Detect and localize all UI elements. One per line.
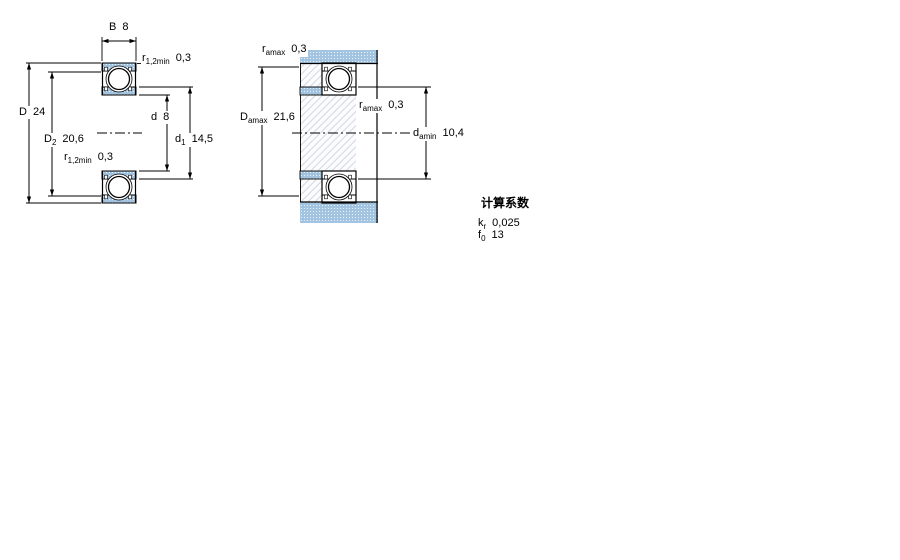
dim-subscript: 1,2min xyxy=(68,156,92,165)
ball-bottom xyxy=(109,177,130,198)
dim-value: 21,6 xyxy=(274,111,295,123)
ball-top xyxy=(109,69,130,90)
drawing-canvas: B8 r1,2min0,3 D24 d8 D220,6 d114,5 r1,2m… xyxy=(0,0,900,560)
seal-notch xyxy=(105,67,108,71)
dim-label-ra-mid: ramax0,3 xyxy=(358,99,405,113)
dim-label-d1: d114,5 xyxy=(174,133,214,147)
dim-label-Da: Damax21,6 xyxy=(239,111,296,125)
dim-subscript: amax xyxy=(266,48,286,57)
dim-symbol: B xyxy=(109,21,116,33)
dim-symbol: D xyxy=(19,106,27,118)
dimension-Da xyxy=(258,67,299,196)
bearing-section-bottom xyxy=(322,171,356,203)
dim-label-D: D24 xyxy=(18,106,46,119)
housing-top xyxy=(300,50,378,63)
dimension-d xyxy=(139,95,170,171)
dim-value: 0,3 xyxy=(176,52,191,64)
ball xyxy=(329,69,350,90)
ball xyxy=(329,177,350,198)
dim-label-r12-bottom: r1,2min0,3 xyxy=(63,151,114,165)
dim-subscript: 2 xyxy=(52,138,56,147)
shaft-shoulder-bottom xyxy=(300,171,322,179)
dim-subscript: amax xyxy=(248,116,268,125)
dim-value: 0,3 xyxy=(388,99,403,111)
bearing-technical-drawing xyxy=(0,0,900,560)
dim-label-r12-top: r1,2min0,3 xyxy=(141,52,192,66)
factor-value: 0,025 xyxy=(492,217,520,229)
dim-symbol: d xyxy=(151,111,157,123)
dim-value: 0,3 xyxy=(98,151,113,163)
dim-subscript: 1 xyxy=(181,138,185,147)
dim-value: 10,4 xyxy=(442,127,463,139)
dim-value: 20,6 xyxy=(62,133,83,145)
dim-value: 8 xyxy=(163,111,169,123)
seal-notch xyxy=(105,195,108,199)
dim-symbol: D xyxy=(44,133,52,145)
dim-value: 14,5 xyxy=(192,133,213,145)
dim-subscript: amin xyxy=(419,132,436,141)
dim-value: 8 xyxy=(122,21,128,33)
dim-value: 24 xyxy=(33,106,45,118)
factor-value: 13 xyxy=(492,229,504,241)
dimension-B xyxy=(102,37,136,61)
housing-bottom xyxy=(300,202,378,223)
dim-label-B: B8 xyxy=(108,21,129,34)
factor-subscript: 0 xyxy=(481,234,485,243)
dim-label-d: d8 xyxy=(150,111,170,124)
seal-notch xyxy=(105,175,108,179)
bearing-section-top xyxy=(322,63,356,95)
dim-subscript: 1,2min xyxy=(146,57,170,66)
factor-row-f0: f013 xyxy=(477,229,505,243)
dim-value: 0,3 xyxy=(291,43,306,55)
seal-notch xyxy=(105,87,108,91)
shaft-shoulder-top xyxy=(300,87,322,95)
dim-label-D2: D220,6 xyxy=(43,133,85,147)
dim-label-da: damin10,4 xyxy=(412,127,465,141)
dim-symbol: D xyxy=(240,111,248,123)
dim-label-ra-top: ramax0,3 xyxy=(261,43,308,57)
calculation-factors-title: 计算系数 xyxy=(481,194,529,211)
dim-subscript: amax xyxy=(363,104,383,113)
